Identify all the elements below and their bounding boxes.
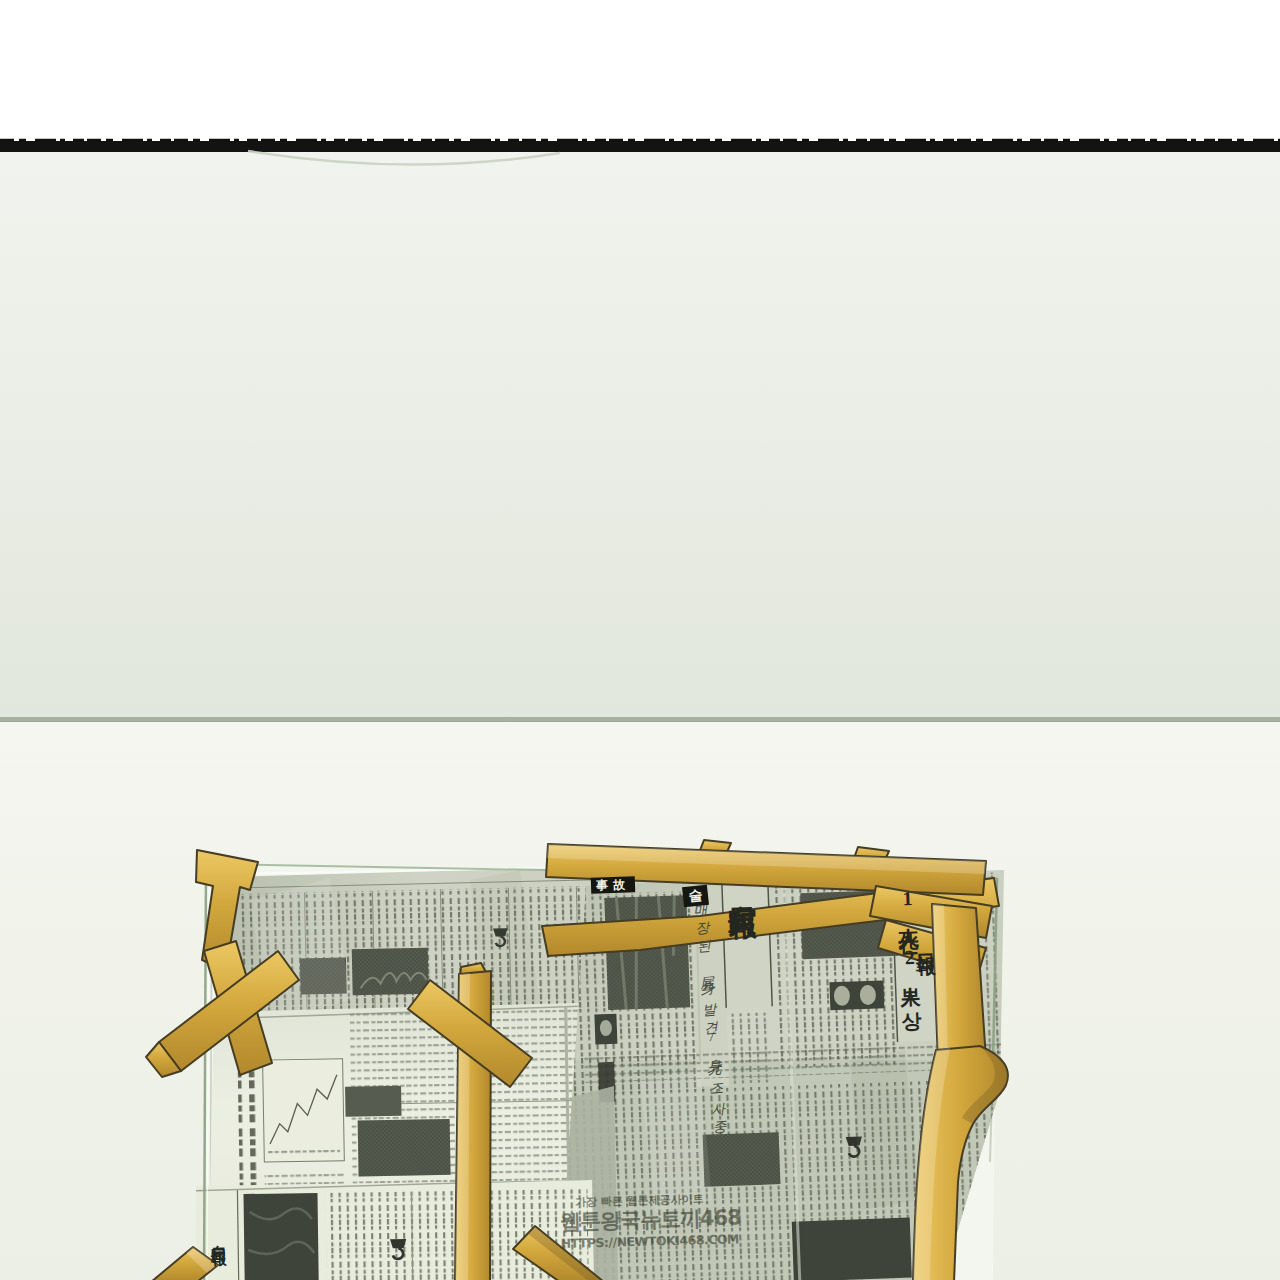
newspaper-masthead: 寅向日報 bbox=[726, 881, 761, 1012]
headline-box-sul: 술 bbox=[682, 885, 709, 908]
webtoon-panel: 寅向日報 매장된 屍身 발견/身元 조사중 1人死亡 2人부상 日報 事故 술 … bbox=[0, 0, 1280, 1280]
wall-top-white bbox=[0, 0, 1280, 142]
site-watermark: 가장 빠른 웹툰제공사이트 웹툰왕국뉴토끼468 HTTPS://NEWTOKI… bbox=[559, 1193, 720, 1251]
watermark-site-name: 웹툰왕국뉴토끼468 bbox=[560, 1208, 720, 1233]
panel-artwork bbox=[0, 0, 1280, 1280]
newspaper-masthead-bottom-left: 向日報 bbox=[210, 1232, 228, 1280]
wall-divider-line bbox=[0, 717, 1280, 722]
newspaper-masthead-fragment: 日報 bbox=[914, 937, 937, 984]
headline-box-accident: 事故 bbox=[591, 876, 636, 894]
black-divider-band bbox=[0, 141, 1280, 152]
wall-upper bbox=[0, 152, 1280, 718]
